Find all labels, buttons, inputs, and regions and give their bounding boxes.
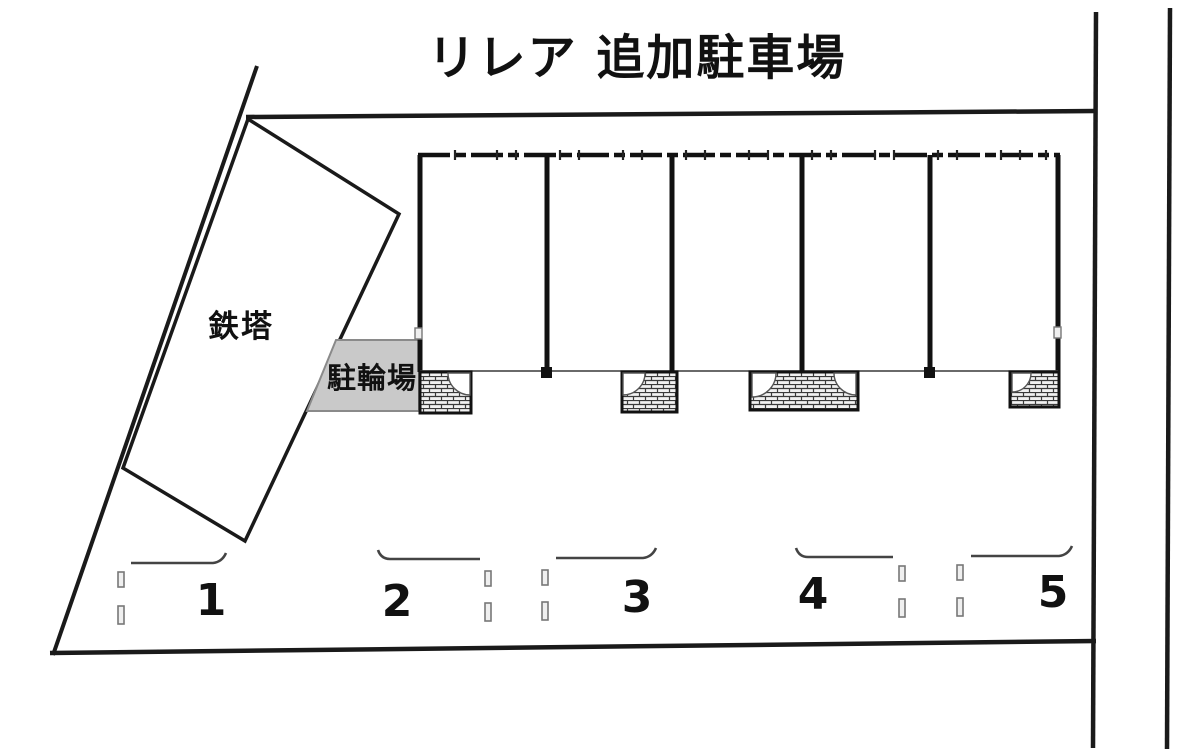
stall-tick: [542, 602, 548, 620]
stall-tick: [542, 570, 548, 585]
stall-tick: [485, 603, 491, 621]
space-number-2: 2: [382, 576, 413, 627]
stall-tick: [957, 565, 963, 580]
stall-tick: [957, 598, 963, 616]
right-boundary-line-inner: [1093, 12, 1096, 748]
space-number-3: 3: [622, 572, 653, 623]
stall-tick: [485, 571, 491, 586]
parking-site-plan: リレア 追加駐車場 鉄塔 駐輪場: [0, 0, 1201, 756]
space-number-5: 5: [1038, 567, 1069, 618]
stall-tick: [118, 572, 124, 587]
divider-foot-4: [924, 367, 935, 378]
space-number-4: 4: [798, 569, 829, 620]
right-boundary-line-outer: [1167, 8, 1170, 749]
stall-tick: [899, 566, 905, 581]
space-number-1: 1: [196, 575, 227, 626]
steel-tower-label: 鉄塔: [208, 309, 274, 345]
divider-foot-1: [541, 367, 552, 378]
stall-tick: [899, 599, 905, 617]
page-title: リレア 追加駐車場: [428, 30, 847, 86]
left-wall-survey-mark: [415, 328, 422, 339]
right-wall-survey-mark: [1054, 327, 1061, 338]
site-plan-page: リレア 追加駐車場 鉄塔 駐輪場: [0, 0, 1201, 756]
stall-tick: [118, 606, 124, 624]
bicycle-parking-label: 駐輪場: [327, 361, 417, 395]
